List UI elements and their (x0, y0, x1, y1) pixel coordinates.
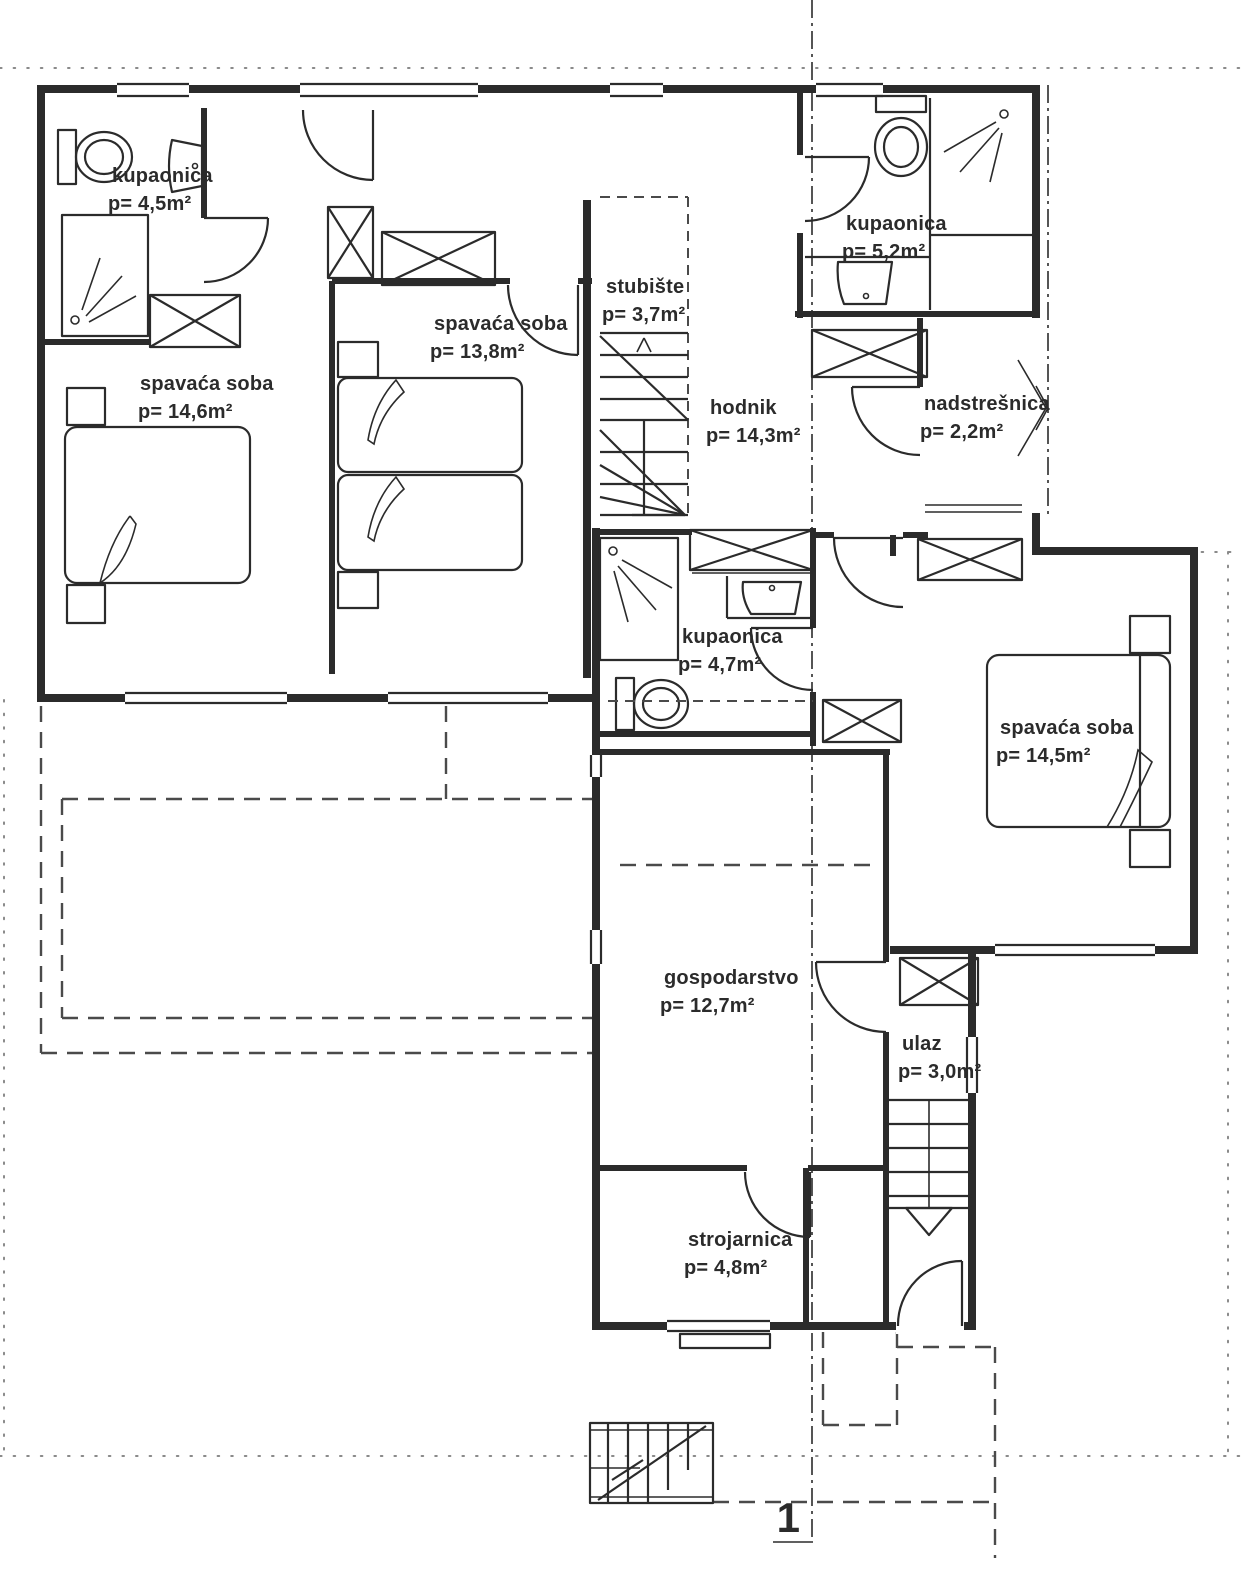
room-area-strojarnica: p= 4,8m² (684, 1257, 767, 1279)
door-entry (896, 1261, 964, 1334)
room-label-kupaonica-2: kupaonica (846, 213, 947, 235)
room-label-spavaca-1: spavaća soba (140, 373, 274, 395)
toilet-icon (616, 678, 688, 730)
door-bathroom-1 (204, 218, 268, 282)
stairs-interior (600, 197, 688, 520)
room-label-stubiste: stubište (606, 276, 684, 298)
room-area-stubiste: p= 3,7m² (602, 304, 685, 326)
room-area-gospodarstvo: p= 12,7m² (660, 995, 755, 1017)
room-area-nadstresnica: p= 2,2m² (920, 421, 1003, 443)
door-bathroom-2 (805, 157, 869, 221)
section-marker-label: 1 (777, 1494, 800, 1541)
terrace-dashed-outline (41, 706, 596, 1053)
xbox (918, 539, 1022, 580)
xbox (690, 530, 813, 570)
room-area-spavaca-2: p= 13,8m² (430, 341, 525, 363)
room-label-kupaonica-3: kupaonica (682, 626, 783, 648)
xbox (150, 295, 240, 347)
xbox (812, 330, 927, 377)
toilet-icon (875, 96, 927, 176)
room-area-kupaonica-3: p= 4,7m² (678, 654, 761, 676)
stairs-exterior (590, 1423, 713, 1503)
shower-icon (600, 538, 678, 660)
room-area-ulaz: p= 3,0m² (898, 1061, 981, 1083)
floor-plan-canvas: kupaonica p= 4,5m² spavaća soba p= 14,6m… (0, 0, 1241, 1584)
door-corridor (303, 110, 373, 180)
door-gospodarstvo (816, 962, 886, 1032)
xbox (328, 207, 373, 278)
xbox (382, 232, 495, 285)
room-label-ulaz: ulaz (902, 1033, 942, 1055)
floor-plan-page: kupaonica p= 4,5m² spavaća soba p= 14,6m… (0, 0, 1241, 1584)
bed-icon (987, 616, 1170, 867)
sink-icon (805, 257, 930, 304)
room-label-gospodarstvo: gospodarstvo (664, 967, 799, 989)
room-label-spavaca-2: spavaća soba (434, 313, 568, 335)
exterior-walls (37, 85, 1198, 1330)
room-label-spavaca-3: spavaća soba (1000, 717, 1134, 739)
room-area-kupaonica-2: p= 5,2m² (842, 241, 925, 263)
shower-icon (62, 215, 148, 336)
bed-twin-icon (338, 342, 522, 608)
room-area-spavaca-3: p= 14,5m² (996, 745, 1091, 767)
canopy-dashed-outline (713, 1332, 995, 1558)
sink-icon (727, 576, 813, 618)
room-label-nadstresnica: nadstrešnica (924, 393, 1050, 415)
room-label-hodnik: hodnik (710, 397, 777, 419)
shower-icon (930, 98, 1032, 310)
room-label-kupaonica-1: kupaonica (112, 165, 213, 187)
room-label-strojarnica: strojarnica (688, 1229, 793, 1251)
door-nadstresnica (852, 387, 920, 455)
room-area-spavaca-1: p= 14,6m² (138, 401, 233, 423)
xbox (900, 958, 978, 1005)
room-area-hodnik: p= 14,3m² (706, 425, 801, 447)
bed-double-icon (65, 388, 250, 623)
room-area-kupaonica-1: p= 4,5m² (108, 193, 191, 215)
door-strojarnica (745, 1172, 810, 1237)
stairs-entry (886, 1100, 972, 1235)
xbox (823, 700, 901, 742)
